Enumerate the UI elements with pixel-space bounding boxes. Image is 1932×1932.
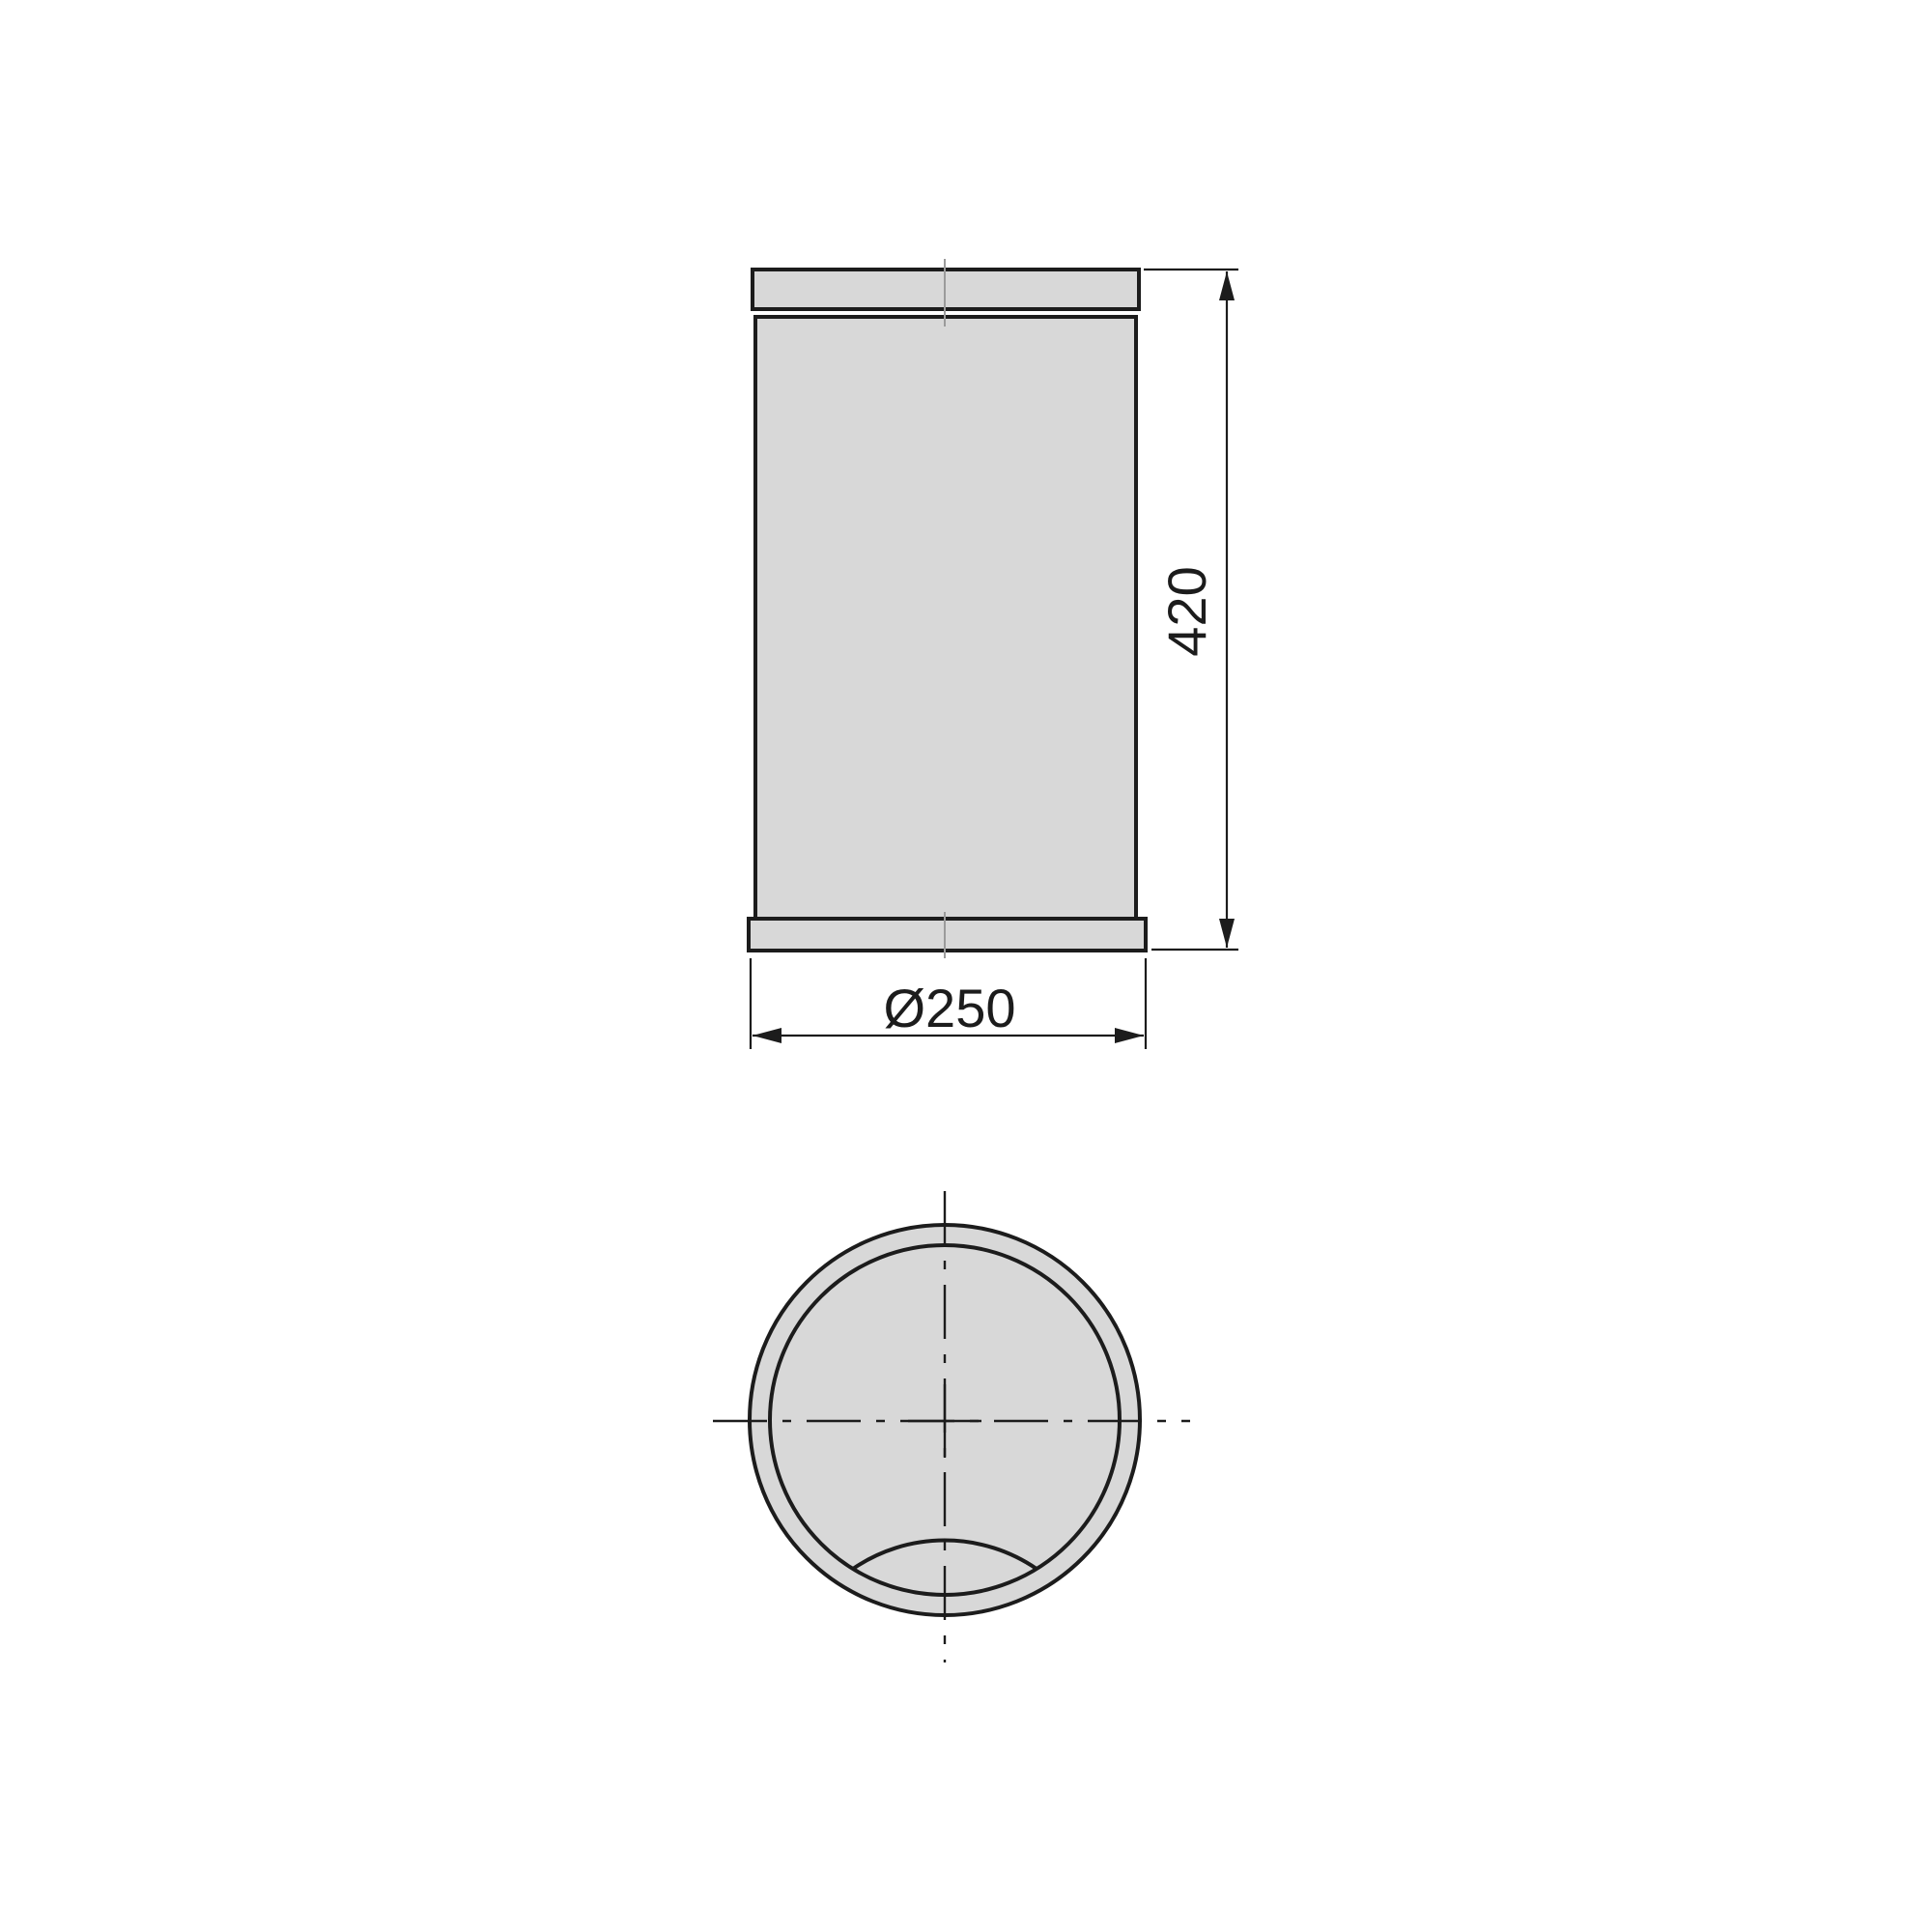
technical-drawing-canvas: 420 Ø250 [0, 0, 1932, 1932]
height-dimension: 420 [1144, 270, 1238, 950]
diameter-dimension: Ø250 [751, 958, 1146, 1049]
diameter-arrow-right [1115, 1028, 1144, 1043]
front-view [749, 259, 1146, 958]
diameter-dimension-value: Ø250 [884, 978, 1016, 1038]
height-arrow-up [1219, 271, 1235, 300]
height-arrow-down [1219, 919, 1235, 948]
diameter-arrow-left [753, 1028, 781, 1043]
front-view-body [755, 317, 1136, 919]
height-dimension-value: 420 [1156, 566, 1217, 656]
front-view-base-flange [749, 919, 1146, 951]
technical-drawing: 420 Ø250 [0, 0, 1932, 1932]
top-view [713, 1191, 1190, 1662]
